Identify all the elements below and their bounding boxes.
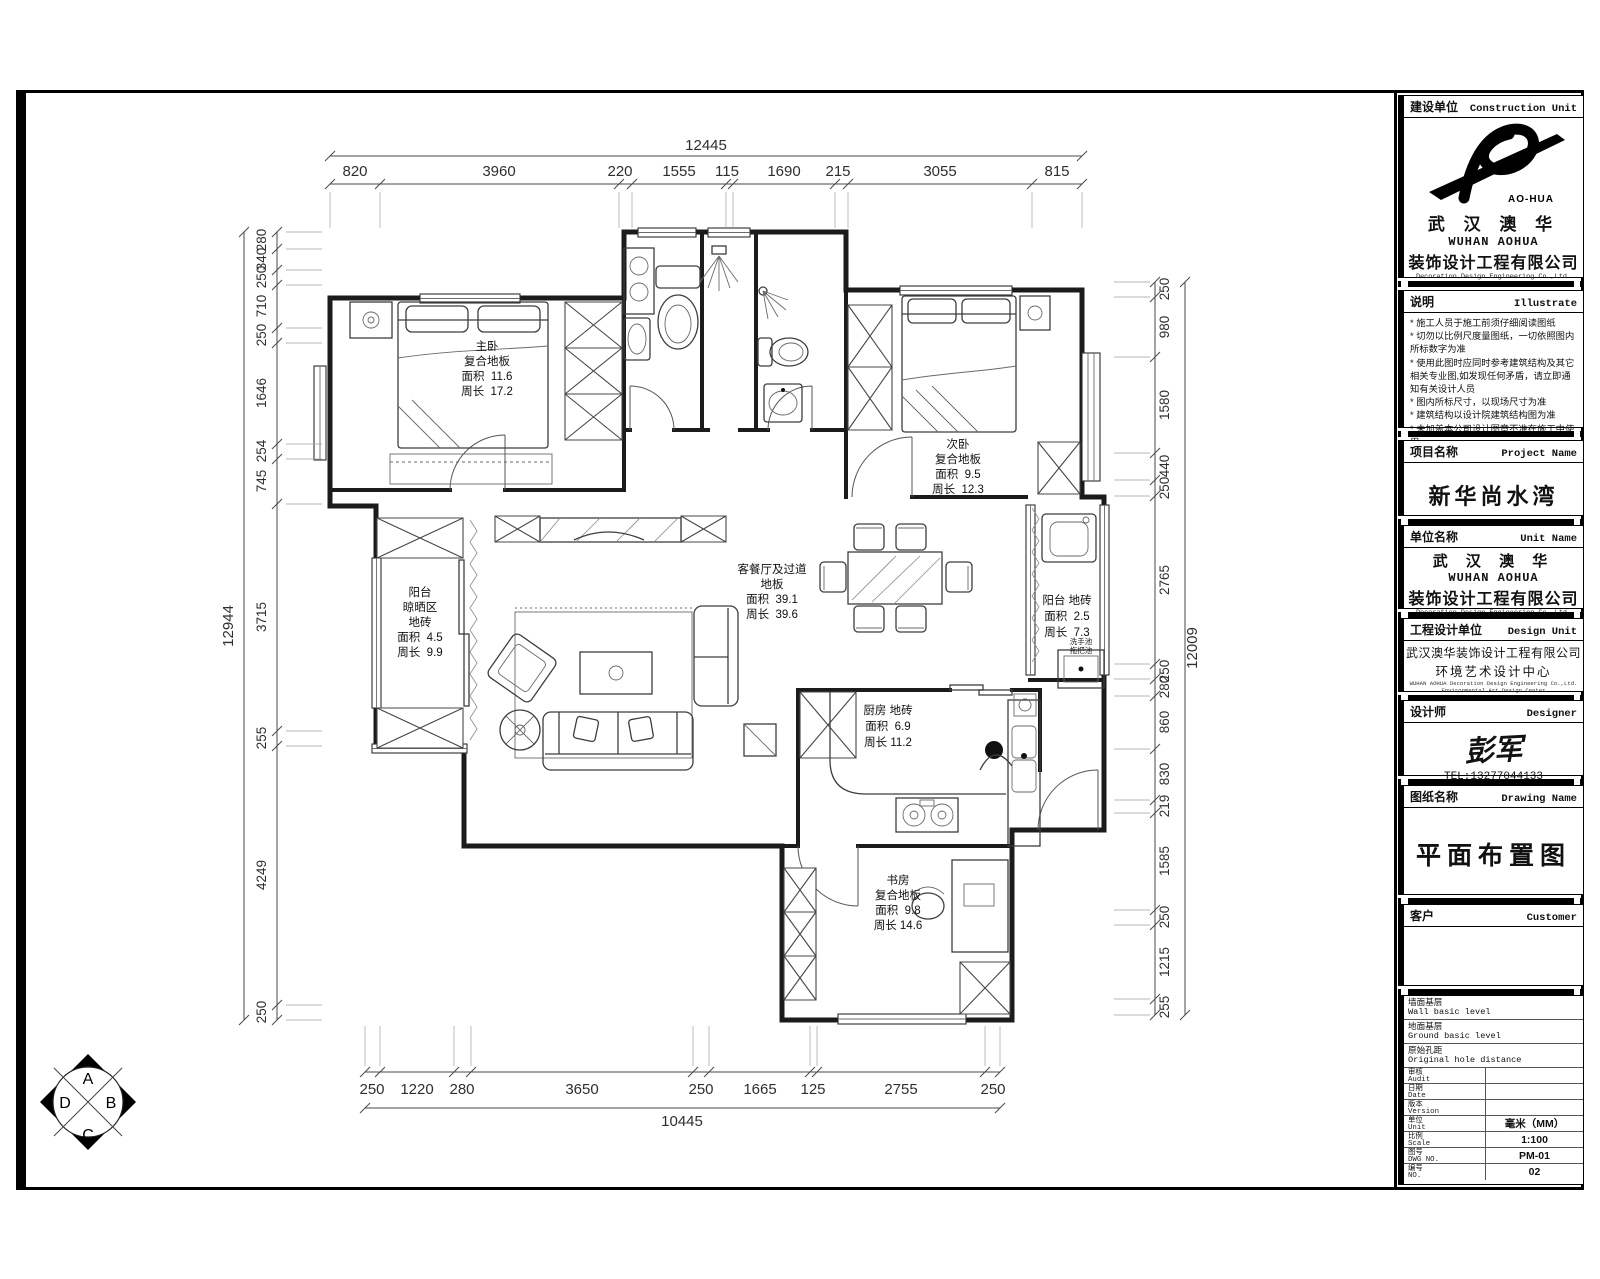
svg-text:250: 250	[688, 1081, 713, 1098]
pillow	[478, 306, 540, 332]
svg-text:440: 440	[1157, 455, 1172, 478]
dim-total: 10445	[661, 1113, 703, 1130]
svg-text:面积 9.5: 面积 9.5	[935, 468, 980, 481]
section-title-en: Construction Unit	[1470, 103, 1577, 115]
vanity	[624, 248, 654, 314]
floor-drain	[1019, 699, 1031, 711]
dim-total: 12944	[220, 605, 237, 647]
svg-text:250: 250	[254, 324, 269, 347]
side-sofa	[694, 606, 738, 706]
brand-en: WUHAN AOHUA	[1404, 571, 1583, 585]
svg-text:复合地板: 复合地板	[464, 354, 510, 368]
dim-chain-top: 820 3960 220 1555 115 1690 215 3055 815 …	[325, 137, 1087, 228]
svg-text:710: 710	[254, 295, 269, 318]
svg-text:280: 280	[1157, 676, 1172, 699]
sofa-pillow	[573, 716, 599, 742]
design-unit-line1: 武汉澳华装饰设计工程有限公司	[1404, 644, 1583, 661]
design-unit-line3: WUHAN AOHUA Decoration Design Engineerin…	[1404, 680, 1583, 687]
section-design-unit: 工程设计单位Design Unit 武汉澳华装饰设计工程有限公司 环境艺术设计中…	[1398, 618, 1584, 692]
info-row-dwgno: 图号DWG NO.PM-01	[1404, 1148, 1583, 1164]
no-value: 02	[1486, 1164, 1583, 1180]
drawing-name-value: 平面布置图	[1404, 836, 1583, 872]
info-row-ground: 地面基层Ground basic level	[1404, 1020, 1583, 1044]
doors	[450, 386, 1098, 906]
compass-letter: B	[106, 1095, 117, 1112]
info-row-hole: 原始孔距Original hole distance	[1404, 1044, 1583, 1068]
dim-total: 12445	[685, 137, 727, 154]
stove	[896, 798, 958, 832]
svg-text:1646: 1646	[254, 378, 269, 408]
section-title-en: Customer	[1527, 912, 1577, 924]
svg-text:125: 125	[800, 1081, 825, 1098]
svg-text:280: 280	[449, 1081, 474, 1098]
room-label: 次卧	[947, 437, 970, 451]
dim-chain-left: 280 340 250 710 250 1646 254 745 3715 25…	[220, 227, 322, 1025]
svg-text:周长 14.6: 周长 14.6	[874, 919, 923, 932]
dim-chain-bottom: 250 1220 280 3650 250 1665 125 2755 250 …	[359, 1026, 1005, 1130]
sink-label: 拖把池	[1070, 645, 1093, 655]
section-illustrate: 说明Illustrate * 施工人员于施工前须仔细阅读图纸 * 切勿以比例尺度…	[1398, 290, 1584, 428]
second-bed	[902, 296, 1016, 432]
svg-text:1665: 1665	[743, 1081, 776, 1098]
svg-text:周长 9.9: 周长 9.9	[397, 646, 442, 659]
note-line: * 切勿以比例尺度量图纸，一切依照图内所标数字为准	[1410, 330, 1577, 356]
svg-text:2765: 2765	[1157, 565, 1172, 595]
info-row-scale: 比例Scale1:100	[1404, 1132, 1583, 1148]
svg-text:250: 250	[980, 1081, 1005, 1098]
note-line: * 使用此图时应同时参考建筑结构及其它相关专业图,如发现任何矛盾，请立即通知有关…	[1410, 357, 1577, 397]
compass-letter: D	[59, 1095, 71, 1112]
toilet-bowl	[658, 295, 698, 349]
svg-text:1220: 1220	[400, 1081, 433, 1098]
pillow	[908, 299, 956, 323]
svg-text:面积 39.1: 面积 39.1	[746, 593, 798, 606]
svg-text:1580: 1580	[1157, 390, 1172, 420]
section-title-en: Project Name	[1501, 448, 1577, 460]
svg-text:地板: 地板	[761, 577, 784, 591]
scale-value: 1:100	[1486, 1132, 1583, 1147]
svg-text:219: 219	[1157, 795, 1172, 818]
info-row-wall: 墙面基层Wall basic level	[1404, 996, 1583, 1020]
compass-letter: A	[83, 1071, 94, 1088]
svg-text:250: 250	[1157, 477, 1172, 500]
drawing-sheet: 主卧 复合地板 面积 11.6 周长 17.2 次卧 复合地板 面积 9.5 周…	[0, 0, 1600, 1279]
kitchen-fixtures	[830, 692, 1040, 846]
svg-text:255: 255	[254, 727, 269, 750]
svg-text:250: 250	[254, 1001, 269, 1024]
svg-text:745: 745	[254, 470, 269, 493]
brand-cn: 武 汉 澳 华	[1404, 550, 1583, 571]
svg-text:3960: 3960	[482, 163, 515, 180]
section-title-cn: 项目名称	[1410, 443, 1458, 460]
section-customer: 客户Customer	[1398, 904, 1584, 986]
exterior-walls	[330, 232, 1104, 1020]
info-row-unit: 单位Unit毫米（MM）	[1404, 1116, 1583, 1132]
company-cn: 装饰设计工程有限公司	[1404, 585, 1583, 609]
note-line: * 建筑结构以设计院建筑结构图为准	[1410, 409, 1577, 422]
master-rug	[390, 454, 552, 484]
room-label: 阳台 地砖	[1042, 593, 1092, 607]
room-label: 阳台	[409, 585, 432, 599]
section-title-cn: 设计师	[1410, 703, 1446, 720]
section-title-cn: 单位名称	[1410, 528, 1458, 545]
bathroom-1-fixtures	[624, 248, 700, 360]
svg-text:1215: 1215	[1157, 947, 1172, 977]
dining-set	[820, 524, 972, 632]
svg-text:复合地板: 复合地板	[875, 888, 921, 902]
coffee-table	[580, 652, 652, 694]
info-row-no: 编号NO.02	[1404, 1164, 1583, 1180]
info-row-version: 版本Version	[1404, 1100, 1583, 1116]
room-label: 主卧	[476, 340, 499, 353]
svg-text:1690: 1690	[767, 163, 800, 180]
aohua-logo: AO-HUA	[1419, 120, 1569, 208]
svg-text:220: 220	[607, 163, 632, 180]
brand-en: WUHAN AOHUA	[1404, 235, 1583, 249]
dwg-no-value: PM-01	[1486, 1148, 1583, 1163]
svg-text:面积 2.5: 面积 2.5	[1044, 610, 1089, 623]
bathroom-2-fixtures	[758, 287, 808, 422]
section-construction-unit: 建设单位Construction Unit AO-HUA 武 汉 澳 华 WUH…	[1398, 95, 1584, 278]
svg-text:250: 250	[1157, 906, 1172, 929]
dim-total: 12009	[1184, 627, 1201, 669]
svg-text:2755: 2755	[884, 1081, 917, 1098]
section-title-cn: 建设单位	[1410, 98, 1458, 115]
section-designer: 设计师Designer 彭军 TEL:13277044133	[1398, 700, 1584, 776]
room-label: 书房	[887, 874, 910, 887]
laptop	[964, 884, 994, 906]
section-title-en: Design Unit	[1508, 626, 1577, 638]
svg-text:1555: 1555	[662, 163, 695, 180]
sink-counter	[1008, 700, 1040, 846]
dim-chain-right: 250 980 1580 440 250 2765 250 280 860 83…	[1114, 277, 1201, 1020]
svg-text:830: 830	[1157, 763, 1172, 786]
section-title-cn: 工程设计单位	[1410, 621, 1482, 638]
windows	[314, 228, 1109, 1024]
insulation-squiggle	[470, 508, 1039, 740]
section-title-en: Designer	[1527, 708, 1577, 720]
compass-letter: C	[82, 1127, 94, 1144]
section-title-cn: 客户	[1410, 907, 1434, 924]
section-info-table: 墙面基层Wall basic level 地面基层Ground basic le…	[1398, 995, 1584, 1185]
svg-text:复合地板: 复合地板	[935, 452, 981, 466]
svg-text:215: 215	[825, 163, 850, 180]
sink-basin	[1012, 760, 1036, 792]
svg-text:254: 254	[254, 439, 269, 462]
room-label: 客餐厅及过道	[738, 562, 807, 576]
logo-caption: AO-HUA	[1508, 194, 1554, 205]
svg-text:3715: 3715	[254, 602, 269, 632]
kitchen-sliding-door	[950, 685, 983, 690]
floor-plan: 主卧 复合地板 面积 11.6 周长 17.2 次卧 复合地板 面积 9.5 周…	[0, 0, 1396, 1279]
svg-text:815: 815	[1044, 163, 1069, 180]
balcony-sink	[1058, 650, 1104, 688]
divider-bar	[1398, 431, 1584, 437]
section-title-en: Illustrate	[1514, 298, 1577, 310]
note-line: * 施工人员于施工前须仔细阅读图纸	[1410, 317, 1577, 330]
unit-value: 毫米（MM）	[1486, 1116, 1583, 1131]
info-row-audit: 审核Audit	[1404, 1068, 1583, 1084]
balcony-sliding-door	[459, 560, 464, 634]
designer-signature: 彭军	[1403, 722, 1584, 773]
section-project-name: 项目名称Project Name 新华尚水湾	[1398, 440, 1584, 516]
toilet-bowl	[770, 338, 808, 366]
kitchen-corner-cabinet	[800, 692, 856, 758]
svg-text:晾晒区: 晾晒区	[403, 600, 438, 614]
svg-text:周长 17.2: 周长 17.2	[461, 385, 513, 398]
dim-label: 250	[359, 1081, 384, 1098]
svg-text:面积 4.5: 面积 4.5	[397, 631, 442, 644]
design-unit-line4: Environmental Art Design Center	[1404, 687, 1583, 694]
dim-label: 250	[1157, 278, 1172, 301]
svg-text:周长 39.6: 周长 39.6	[746, 608, 798, 621]
note-line: * 图内所标尺寸，以现场尺寸为准	[1410, 396, 1577, 409]
svg-text:3055: 3055	[923, 163, 956, 180]
svg-text:地砖: 地砖	[409, 615, 432, 629]
svg-text:面积 9.8: 面积 9.8	[875, 904, 920, 917]
living-rug	[515, 608, 692, 758]
svg-text:4249: 4249	[254, 860, 269, 890]
section-drawing-name: 图纸名称Drawing Name 平面布置图	[1398, 785, 1584, 895]
project-name-value: 新华尚水湾	[1404, 479, 1583, 511]
dining-table	[848, 552, 942, 604]
armchair	[486, 632, 558, 704]
washing-machine	[1042, 514, 1096, 562]
svg-text:面积 6.9: 面积 6.9	[865, 720, 910, 733]
study-furniture	[912, 860, 1008, 952]
tv-wall	[540, 518, 681, 542]
section-title-cn: 说明	[1410, 293, 1434, 310]
section-title-en: Drawing Name	[1501, 793, 1577, 805]
svg-text:255: 255	[1157, 996, 1172, 1019]
svg-text:周长 12.3: 周长 12.3	[932, 483, 984, 496]
section-unit-name: 单位名称Unit Name 武 汉 澳 华 WUHAN AOHUA 装饰设计工程…	[1398, 525, 1584, 609]
pillow	[406, 306, 468, 332]
master-nightstand	[350, 302, 392, 338]
svg-text:面积 11.6: 面积 11.6	[462, 370, 513, 383]
info-row-date: 日期Date	[1404, 1084, 1583, 1100]
company-cn: 装饰设计工程有限公司	[1404, 249, 1583, 273]
room-label: 厨房 地砖	[863, 703, 913, 717]
svg-text:3650: 3650	[565, 1081, 598, 1098]
shower-room-fixtures	[700, 246, 738, 291]
second-nightstand	[1020, 296, 1050, 330]
side-table	[744, 724, 776, 756]
svg-text:1585: 1585	[1157, 846, 1172, 876]
divider-bar	[1398, 281, 1584, 287]
sink-label: 洗手池	[1070, 636, 1093, 646]
pillow	[962, 299, 1010, 323]
svg-text:250: 250	[254, 266, 269, 289]
company-en: Decoration Design Engineering Co.,Ltd.	[1404, 273, 1583, 281]
sofa	[543, 606, 738, 770]
shower-head	[712, 246, 726, 254]
brand-cn: 武 汉 澳 华	[1404, 210, 1583, 235]
svg-text:周长 11.2: 周长 11.2	[864, 736, 912, 749]
svg-text:980: 980	[1157, 316, 1172, 339]
toilet-tank	[656, 266, 700, 288]
sofa-pillow	[628, 716, 653, 741]
svg-text:115: 115	[715, 163, 739, 180]
dim-label: 820	[342, 163, 367, 180]
orientation-compass: A B C D	[38, 1052, 138, 1152]
section-title-en: Unit Name	[1520, 533, 1577, 545]
svg-text:860: 860	[1157, 711, 1172, 734]
plant-table	[500, 710, 540, 750]
design-unit-line2: 环境艺术设计中心	[1404, 661, 1583, 680]
section-title-cn: 图纸名称	[1410, 788, 1458, 805]
